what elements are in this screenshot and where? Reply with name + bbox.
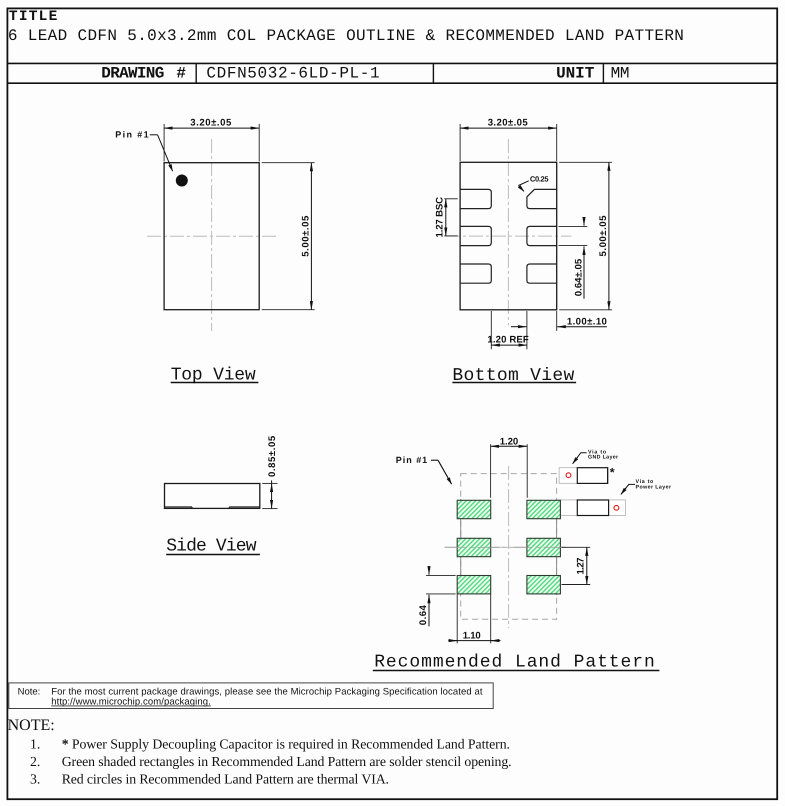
svg-text:C0.25: C0.25	[530, 175, 549, 184]
svg-text:0.64±.05: 0.64±.05	[573, 258, 584, 296]
svg-text:GND Layer: GND Layer	[588, 454, 618, 460]
svg-text:Recommended Land Pattern: Recommended Land Pattern	[374, 653, 655, 673]
svg-text:TITLE: TITLE	[9, 9, 58, 25]
svg-text:1.20 REF: 1.20 REF	[487, 335, 529, 346]
svg-text:3.20±.05: 3.20±.05	[190, 117, 232, 128]
svg-text:*: *	[610, 465, 615, 479]
svg-text:Red circles in Recommended Lan: Red circles in Recommended Land Pattern …	[62, 772, 389, 787]
svg-text:NOTE:: NOTE:	[8, 717, 55, 734]
svg-text:Power Layer: Power Layer	[636, 485, 672, 491]
svg-text:1.27 BSC: 1.27 BSC	[434, 197, 445, 238]
svg-text:UNIT: UNIT	[556, 65, 595, 83]
svg-text:3.20±.05: 3.20±.05	[488, 117, 529, 128]
svg-text:Green shaded rectangles in Rec: Green shaded rectangles in Recommended L…	[62, 754, 512, 769]
svg-text:1.: 1.	[30, 737, 40, 752]
svg-text:* Power Supply Decoupling Capa: * Power Supply Decoupling Capacitor is r…	[62, 737, 510, 752]
svg-text:Pin #1: Pin #1	[396, 455, 427, 465]
svg-text:5.00±.05: 5.00±.05	[300, 215, 311, 257]
svg-text:Note:: Note:	[18, 686, 41, 697]
svg-text:2.: 2.	[30, 754, 40, 769]
svg-text:0.64: 0.64	[418, 605, 429, 626]
svg-text:DRAWING: DRAWING	[101, 65, 164, 83]
svg-text:Side View: Side View	[166, 537, 256, 557]
svg-text:1.20: 1.20	[500, 436, 519, 447]
svg-text:6 LEAD CDFN 5.0x3.2mm COL PACK: 6 LEAD CDFN 5.0x3.2mm COL PACKAGE OUTLIN…	[8, 27, 684, 45]
svg-text:3.: 3.	[30, 772, 40, 787]
svg-text:MM: MM	[611, 65, 630, 83]
svg-text:1.10: 1.10	[463, 631, 481, 642]
svg-text:0.85±.05: 0.85±.05	[267, 435, 278, 477]
svg-text:1.00±.10: 1.00±.10	[567, 316, 607, 327]
svg-text:#: #	[176, 65, 186, 83]
svg-text:1.27: 1.27	[576, 558, 587, 575]
svg-text:5.00±.05: 5.00±.05	[598, 215, 609, 257]
svg-text:Pin #1: Pin #1	[115, 130, 148, 140]
svg-text:CDFN5032-6LD-PL-1: CDFN5032-6LD-PL-1	[206, 65, 379, 83]
